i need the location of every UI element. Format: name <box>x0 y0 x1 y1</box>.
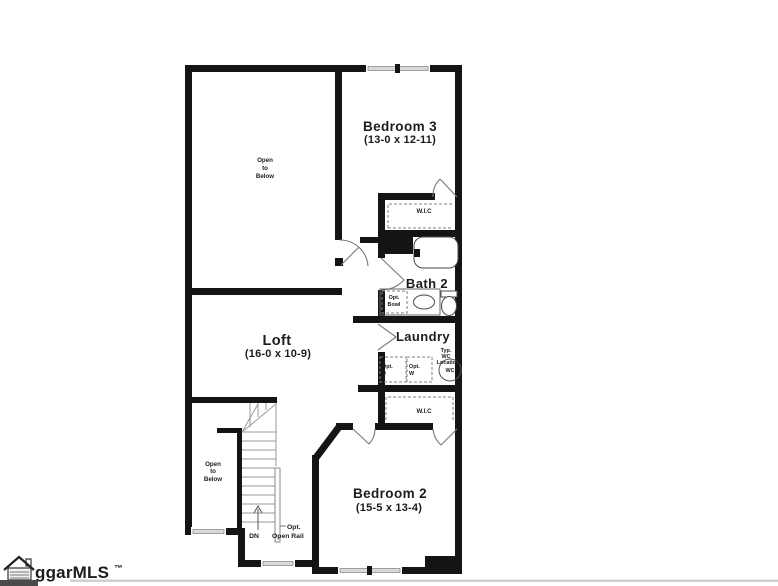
stair-rail <box>275 468 280 542</box>
watermark-rule <box>70 580 778 583</box>
wall-bedroom2-chamfer <box>315 427 339 459</box>
opt-rail-line2: Open Rail <box>272 533 304 540</box>
house-icon <box>4 557 34 580</box>
door-bath2 <box>381 258 404 290</box>
opt-rail-line1: Opt. <box>287 524 301 531</box>
stair-treads <box>242 403 276 522</box>
door-wic-upper <box>433 179 457 197</box>
door-bedroom3 <box>340 240 368 266</box>
open-below-stairs-line2: to <box>210 468 216 475</box>
svg-text:ggarMLS ™: ggarMLS ™ <box>35 563 123 582</box>
down-label: DN <box>249 533 259 540</box>
floor-plan-svg: Bedroom 3 (13-0 x 12-11) Open to Below W… <box>0 0 778 586</box>
wall-laundry-south <box>358 385 462 392</box>
opt-dryer-line2: D <box>382 371 386 377</box>
wall-lowerleft-vertical <box>238 530 245 567</box>
laundry-name: Laundry <box>396 329 450 344</box>
open-below-loft-line1: Open <box>257 157 273 164</box>
toilet <box>441 291 457 316</box>
window-hall-bottom <box>261 559 295 568</box>
opt-bowl-line2: Bowl <box>388 302 401 308</box>
watermark-brand: ggarMLS <box>35 563 109 582</box>
wic-upper-label: W.I.C <box>416 208 432 215</box>
watermark-tm: ™ <box>114 563 123 573</box>
opt-washer-line1: Opt. <box>409 364 420 370</box>
wall-wic1-north <box>378 193 435 200</box>
bedroom2-dims: (15-5 x 13-4) <box>356 502 422 514</box>
watermark-bar <box>0 580 38 586</box>
opt-dryer-line1: Opt. <box>382 364 393 370</box>
door-bedroom2-entry <box>353 429 375 444</box>
floor-plan-image: Bedroom 3 (13-0 x 12-11) Open to Below W… <box>0 0 778 586</box>
opt-bowl-line1: Opt. <box>389 295 400 301</box>
open-below-stairs-line1: Open <box>205 461 221 468</box>
bathtub <box>414 237 458 268</box>
bedroom3-name: Bedroom 3 <box>363 119 437 134</box>
loft-dims: (16-0 x 10-9) <box>245 348 311 360</box>
typ-wc-line3: Location <box>437 360 459 366</box>
window-stair-bottom <box>191 527 226 536</box>
door-laundry-opening <box>378 324 396 350</box>
wall-bath-plumbing-mass <box>380 237 413 254</box>
window-bedroom2-bottom <box>338 566 402 575</box>
opt-washer-line2: W <box>409 371 415 377</box>
wall-openbelow-right <box>335 65 342 240</box>
stair-winders <box>242 403 276 432</box>
wc-circle-label: WC <box>446 368 455 374</box>
wall-bedroom2-top-b <box>375 423 433 430</box>
wall-stair-inner-v <box>237 428 242 528</box>
loft-name: Loft <box>263 333 292 349</box>
door-wic-lower <box>433 429 457 445</box>
wall-stair-top <box>188 397 277 403</box>
open-below-loft-line3: Below <box>256 173 274 180</box>
wall-bath-laundry-divider <box>353 316 462 323</box>
window-top <box>366 64 430 73</box>
wall-openbelow-bottom <box>185 288 342 295</box>
wic-lower-label: W.I.C <box>416 408 432 415</box>
wall-left <box>185 65 192 535</box>
open-below-stairs-line3: Below <box>204 476 222 483</box>
bedroom2-name: Bedroom 2 <box>353 486 427 501</box>
open-below-loft-line2: to <box>262 165 268 172</box>
bath2-name: Bath 2 <box>406 276 448 291</box>
bedroom3-dims: (13-0 x 12-11) <box>364 134 436 146</box>
wall-wic1-south <box>378 230 462 237</box>
down-arrow-icon <box>254 506 262 530</box>
wall-bedroom2-step <box>425 556 462 574</box>
wall-bedroom2-left <box>312 455 319 574</box>
